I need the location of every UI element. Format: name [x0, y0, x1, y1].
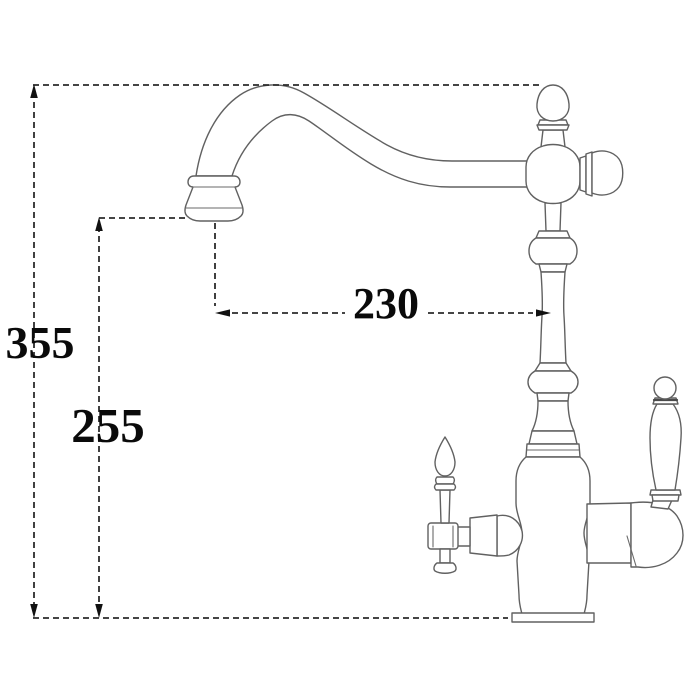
arrowhead-down-355 [30, 604, 38, 618]
column-neck-top [545, 203, 561, 231]
left-spindle-foot [434, 563, 456, 573]
left-connector-bar [457, 527, 470, 546]
column-neck-bottom [529, 431, 577, 444]
column-ring-4 [537, 393, 569, 401]
left-flame-finial [435, 437, 455, 476]
base-plate [512, 613, 594, 622]
dimension-label-overall-height: 355 [6, 317, 75, 368]
lever-collar-1 [650, 490, 681, 495]
right-housing-cap [631, 502, 683, 567]
dimension-label-spout-reach: 230 [353, 279, 419, 328]
column-ring-2 [539, 264, 567, 272]
arrowhead-up-355 [30, 84, 38, 98]
top-egg-finial [537, 85, 569, 121]
diagram-svg: 355 255 230 [0, 0, 700, 700]
spout-tube [196, 85, 527, 187]
faucet-dimension-diagram: 355 255 230 [0, 0, 700, 700]
faucet-top-assembly [526, 85, 623, 204]
column-shaft [540, 272, 566, 363]
arrowhead-up-255 [95, 217, 103, 231]
lever-ball-knob [654, 377, 676, 399]
side-egg-knob [592, 151, 623, 195]
aerator-body [185, 176, 243, 221]
side-knob-collar-1 [580, 156, 586, 192]
faucet-column [526, 203, 580, 457]
right-housing-panel [587, 503, 631, 563]
left-connector-body [470, 515, 497, 556]
lever-grip [650, 404, 681, 490]
column-torus-2 [528, 371, 578, 393]
right-lever-assembly [587, 377, 683, 567]
left-handle-assembly [428, 437, 522, 573]
column-ring-3 [535, 363, 571, 371]
lower-body [516, 457, 590, 614]
left-spindle-ring-2 [435, 484, 456, 490]
spout-aerator [185, 176, 243, 221]
arrowhead-down-255 [95, 604, 103, 618]
left-spindle-ring-1 [436, 477, 455, 484]
side-knob-collar-2 [586, 152, 592, 196]
left-spindle-lower [440, 549, 450, 563]
left-spindle-upper [440, 490, 450, 523]
dimension-labels: 355 255 230 [6, 279, 420, 453]
column-flare [532, 401, 574, 431]
ball-joint [526, 145, 580, 204]
dimension-label-outlet-height: 255 [71, 398, 145, 453]
column-torus-1 [529, 238, 577, 264]
arrowhead-left-230 [215, 309, 230, 316]
faucet-drawing [185, 85, 683, 622]
finial-collar-lower [537, 125, 569, 130]
column-ring-1 [536, 231, 570, 238]
lever-collar-2 [652, 495, 679, 501]
